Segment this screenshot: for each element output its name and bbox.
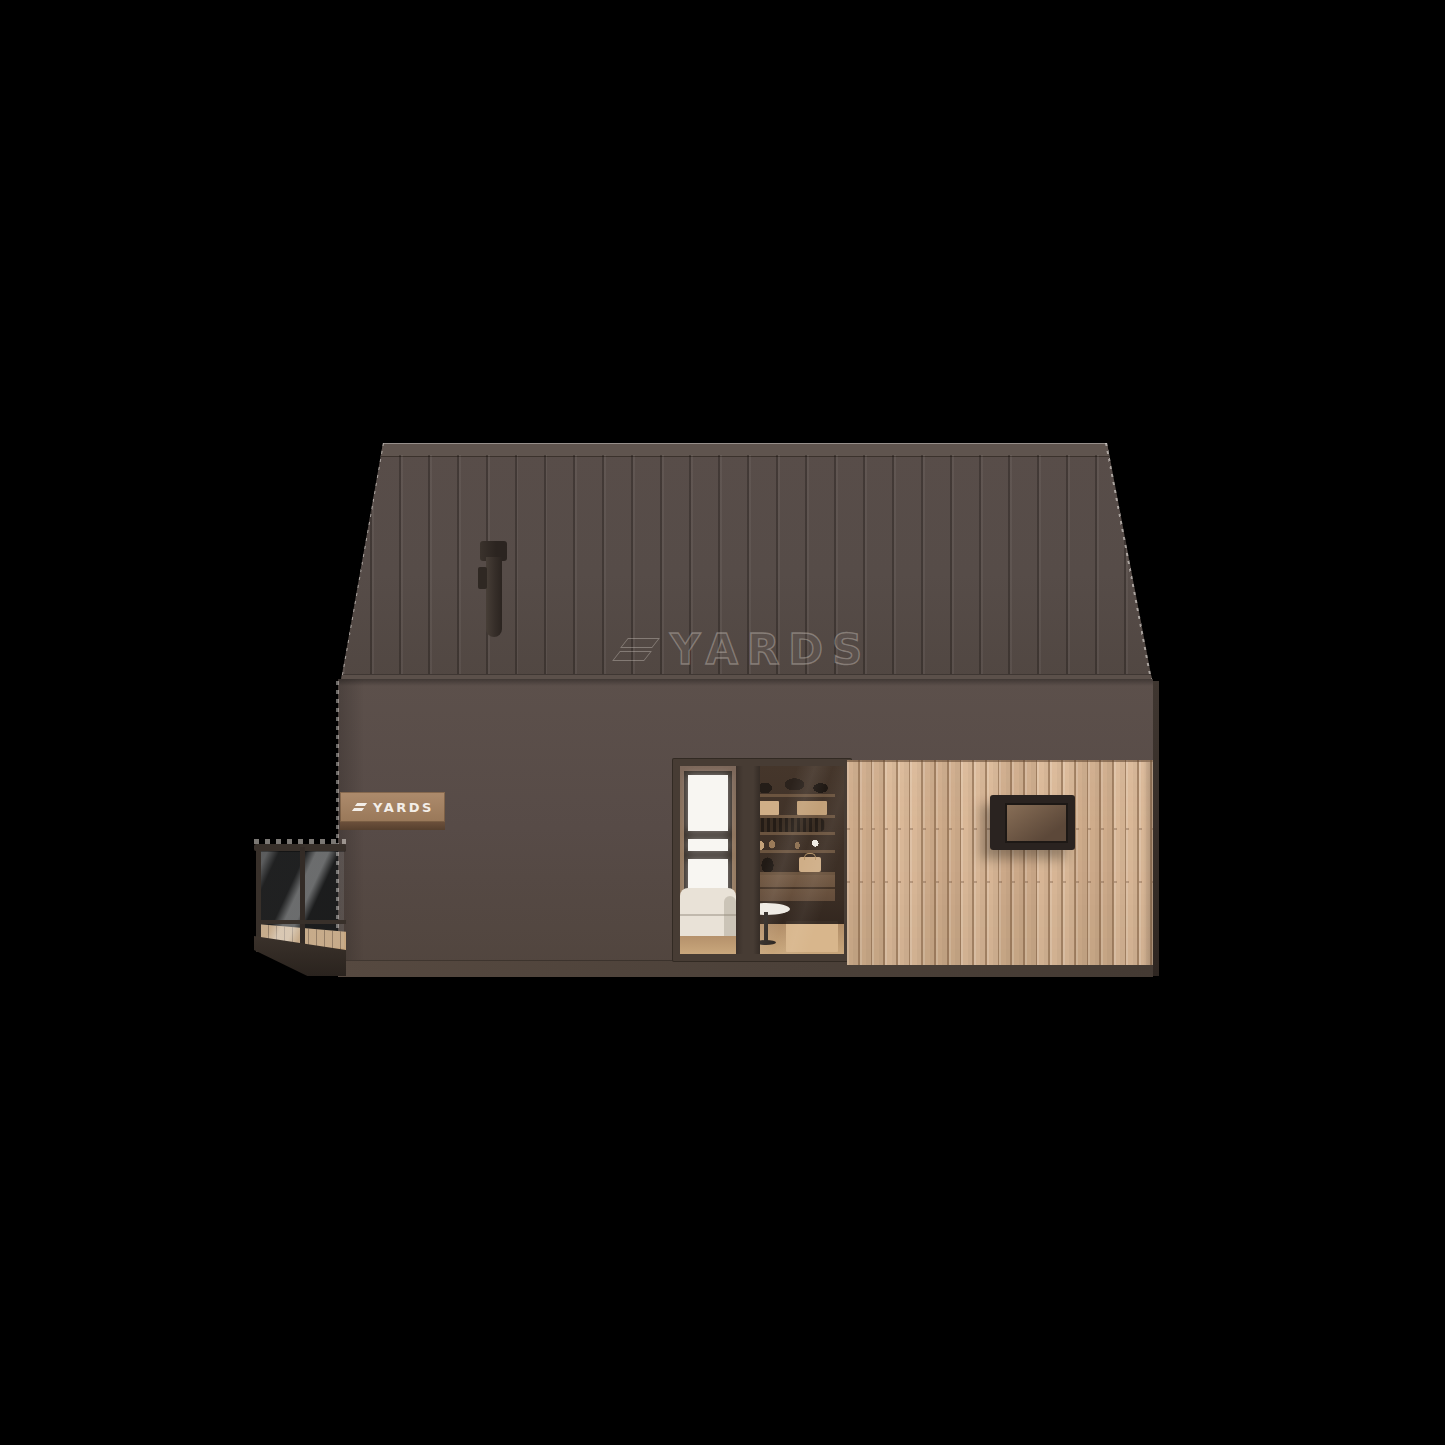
balcony-post	[300, 847, 305, 955]
watermark: YARDS	[612, 620, 892, 680]
wood-bench	[786, 921, 838, 952]
yards-sign: YARDS	[340, 792, 445, 822]
interior-floor	[680, 936, 737, 954]
yards-logo-icon	[351, 802, 367, 813]
wood-cladding	[847, 760, 1153, 965]
table-leg	[764, 912, 768, 942]
glass-sliding-door	[672, 758, 852, 962]
interior-scene	[680, 766, 844, 954]
yards-logo-icon	[612, 634, 658, 666]
interior-left-view	[680, 766, 737, 954]
chimney-bracket	[478, 567, 487, 589]
balcony-mid-rail	[256, 920, 346, 924]
back-window-pane	[688, 775, 728, 831]
balcony-post	[256, 846, 261, 952]
wall-right-side-return	[1153, 681, 1159, 976]
watermark-text: YARDS	[670, 629, 871, 671]
door-mullion	[736, 766, 760, 954]
yards-sign-edge	[340, 822, 445, 830]
shelf-basket	[755, 818, 825, 832]
logo-bar-icon	[355, 803, 367, 806]
cladding-seam	[847, 881, 1153, 883]
back-window-pane	[688, 839, 728, 851]
logo-bar-icon	[352, 808, 364, 811]
render-canvas: YARDS YARDS	[0, 0, 1445, 1445]
tote-bag	[799, 857, 821, 872]
balcony	[254, 836, 346, 976]
logo-bar-icon	[620, 638, 660, 648]
sign-text: YARDS	[373, 800, 434, 815]
logo-bar-icon	[612, 651, 652, 661]
chimney-pipe	[486, 557, 502, 637]
small-window	[990, 795, 1075, 850]
storage-box	[797, 801, 827, 815]
